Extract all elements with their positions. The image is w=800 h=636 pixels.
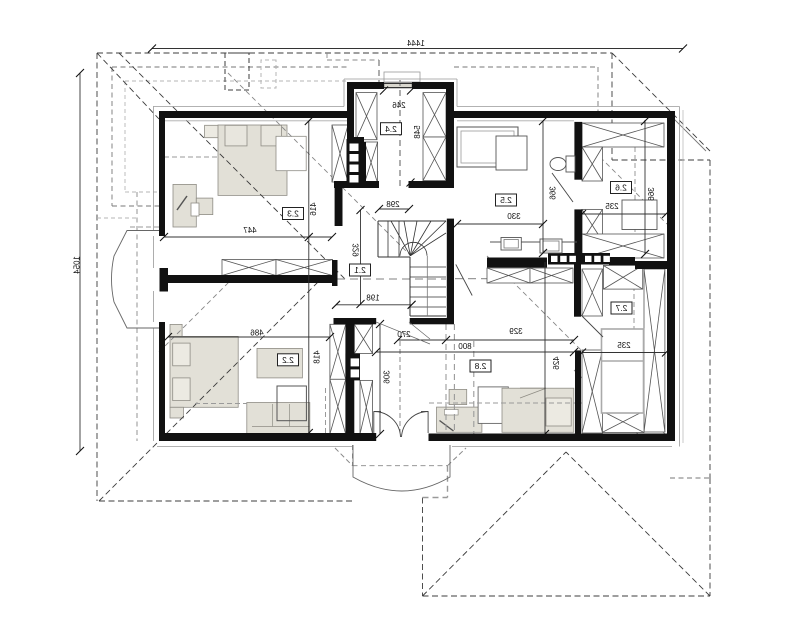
svg-text:366: 366	[647, 187, 656, 201]
svg-text:2.5: 2.5	[500, 195, 512, 205]
svg-text:235: 235	[605, 202, 619, 211]
svg-text:2.7: 2.7	[615, 303, 627, 313]
svg-text:800: 800	[458, 342, 472, 351]
svg-text:416: 416	[309, 202, 318, 216]
svg-text:1054: 1054	[73, 256, 82, 274]
svg-text:235: 235	[617, 341, 631, 350]
svg-text:2.6: 2.6	[615, 183, 627, 193]
svg-text:2.1: 2.1	[354, 265, 366, 275]
svg-text:548: 548	[413, 125, 422, 139]
svg-text:198: 198	[366, 294, 380, 303]
svg-text:2.4: 2.4	[385, 124, 397, 134]
svg-text:426: 426	[552, 356, 561, 370]
svg-text:246: 246	[392, 101, 406, 110]
svg-text:486: 486	[250, 329, 264, 338]
svg-text:418: 418	[313, 350, 322, 364]
svg-text:447: 447	[243, 226, 257, 235]
svg-text:2.8: 2.8	[474, 361, 486, 371]
svg-text:329: 329	[352, 243, 361, 257]
svg-text:298: 298	[386, 200, 400, 209]
svg-text:1444: 1444	[407, 39, 425, 48]
svg-text:366: 366	[549, 186, 558, 200]
svg-text:2.3: 2.3	[287, 209, 299, 219]
svg-text:2.2: 2.2	[282, 355, 294, 365]
svg-text:329: 329	[509, 327, 523, 336]
svg-text:330: 330	[507, 212, 521, 221]
svg-text:306: 306	[383, 370, 392, 384]
